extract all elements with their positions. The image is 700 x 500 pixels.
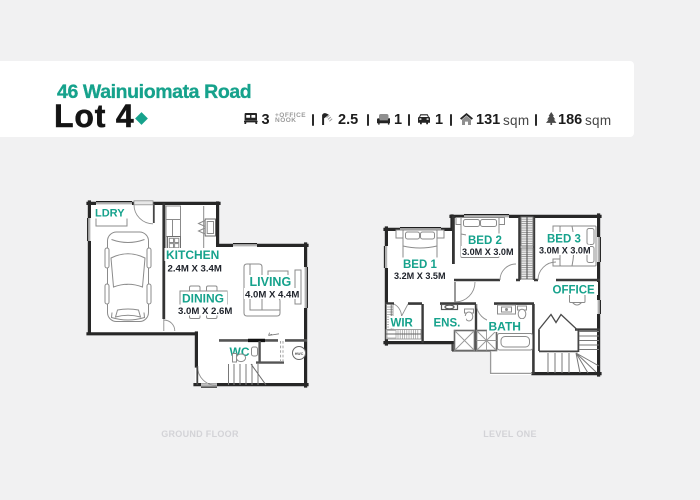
svg-text:LDRY: LDRY [95,208,125,220]
svg-text:BED 3: BED 3 [547,234,581,246]
svg-text:LIVING: LIVING [250,275,292,289]
svg-text:BED 2: BED 2 [468,235,502,247]
svg-text:OFFICE: OFFICE [553,285,595,297]
svg-text:HWC: HWC [295,352,304,356]
svg-text:BATH: BATH [489,320,521,334]
svg-text:DINING: DINING [182,292,224,306]
svg-text:KITCHEN: KITCHEN [166,248,219,262]
svg-text:3.0M X 3.0M: 3.0M X 3.0M [539,246,591,256]
svg-text:4.0M X 4.4M: 4.0M X 4.4M [245,290,299,301]
svg-text:2.4M X 3.4M: 2.4M X 3.4M [168,264,222,275]
svg-text:ENS.: ENS. [434,318,461,330]
svg-text:BED 1: BED 1 [403,259,437,271]
svg-text:WIR: WIR [391,318,414,330]
svg-text:3.0M X 2.6M: 3.0M X 2.6M [178,306,232,317]
svg-text:3.2M X 3.5M: 3.2M X 3.5M [394,271,446,281]
svg-text:3.0M X 3.0M: 3.0M X 3.0M [462,247,514,257]
